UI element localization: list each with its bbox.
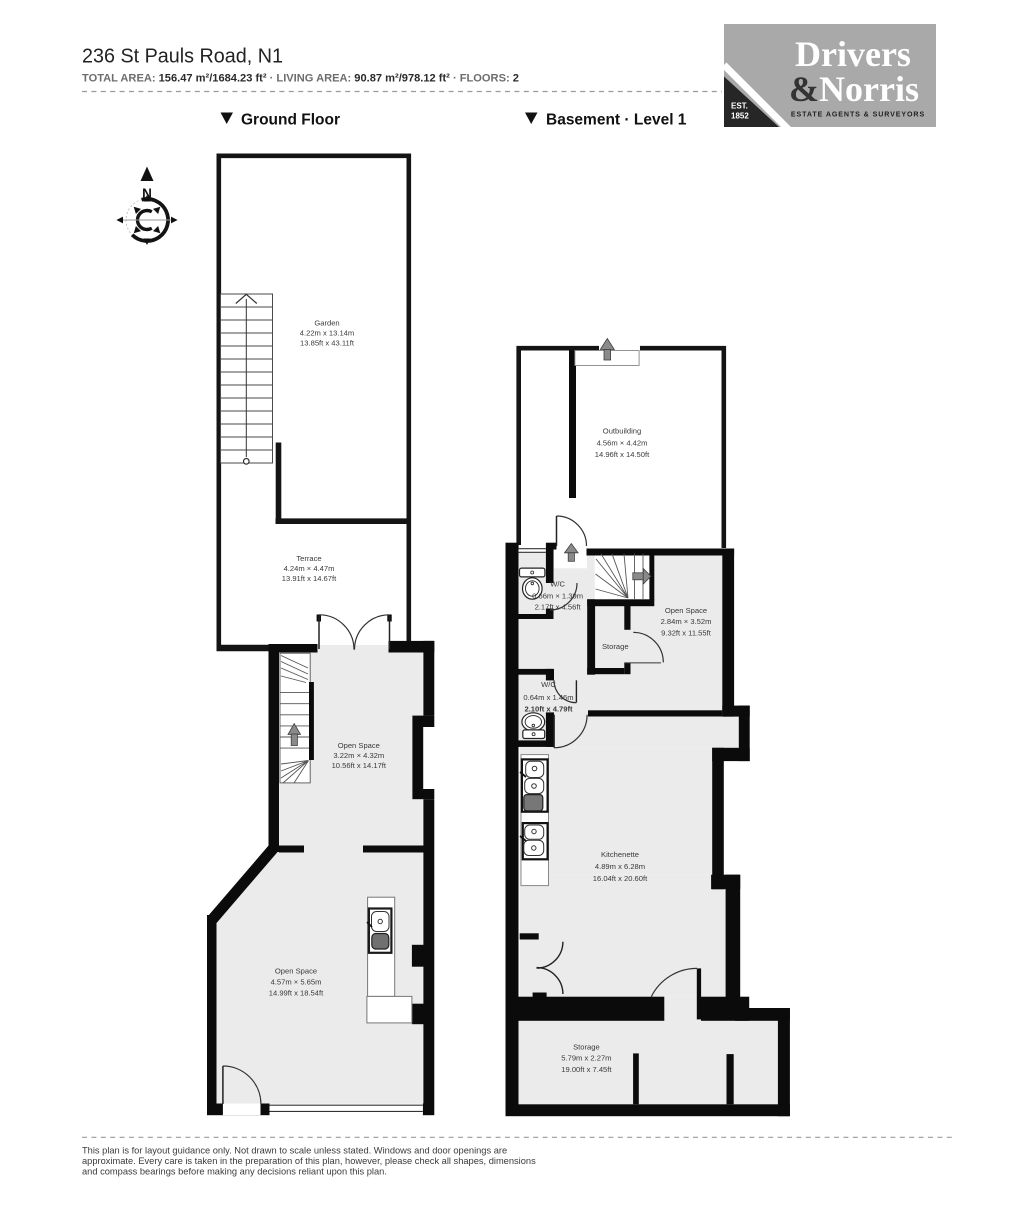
svg-text:9.32ft x 11.55ft: 9.32ft x 11.55ft [661,629,712,638]
svg-text:W/C: W/C [550,580,565,589]
svg-text:1852: 1852 [731,112,749,121]
svg-text:14.96ft x 14.50ft: 14.96ft x 14.50ft [595,450,650,459]
svg-text:Open Space: Open Space [338,741,380,750]
svg-text:Garden: Garden [314,319,339,328]
svg-text:Drivers: Drivers [795,34,911,74]
svg-text:ESTATE AGENTS & SURVEYORS: ESTATE AGENTS & SURVEYORS [791,111,925,119]
svg-text:&Norris: &Norris [789,69,919,109]
svg-text:2.17ft x 4.56ft: 2.17ft x 4.56ft [535,603,582,612]
svg-text:This plan is for layout guidan: This plan is for layout guidance only. N… [82,1146,507,1156]
svg-text:Outbuilding: Outbuilding [603,427,641,436]
svg-text:TOTAL AREA: 156.47 m²/1684.23: TOTAL AREA: 156.47 m²/1684.23 ft² · LIVI… [82,73,519,85]
svg-text:Basement · Level 1: Basement · Level 1 [546,112,687,129]
svg-text:0.66m × 1.39m: 0.66m × 1.39m [532,592,583,601]
svg-text:2.10ft x 4.79ft: 2.10ft x 4.79ft [524,705,573,714]
svg-text:13.91ft x 14.67ft: 13.91ft x 14.67ft [282,574,337,583]
svg-text:Storage: Storage [602,642,629,651]
svg-text:Open Space: Open Space [665,606,707,615]
svg-text:4.24m × 4.47m: 4.24m × 4.47m [284,564,335,573]
svg-text:Kitchenette: Kitchenette [601,850,639,859]
svg-text:10.56ft x 14.17ft: 10.56ft x 14.17ft [332,761,387,770]
svg-text:4.22m x 13.14m: 4.22m x 13.14m [300,329,354,338]
svg-text:4.89m x 6.28m: 4.89m x 6.28m [595,862,645,871]
svg-text:19.00ft x 7.45ft: 19.00ft x 7.45ft [561,1065,612,1074]
svg-text:3.22m × 4.32m: 3.22m × 4.32m [333,751,384,760]
svg-text:13.85ft x 43.11ft: 13.85ft x 43.11ft [300,339,355,348]
svg-text:Ground Floor: Ground Floor [241,112,340,129]
svg-text:EST.: EST. [731,102,748,111]
svg-text:16.04ft x 20.60ft: 16.04ft x 20.60ft [593,874,648,883]
svg-text:14.99ft x 18.54ft: 14.99ft x 18.54ft [269,988,324,997]
svg-text:5.79m x 2.27m: 5.79m x 2.27m [561,1054,611,1063]
svg-text:Terrace: Terrace [296,554,321,563]
svg-text:4.57m × 5.65m: 4.57m × 5.65m [271,977,322,986]
svg-text:Open Space: Open Space [275,966,317,975]
svg-text:4.56m × 4.42m: 4.56m × 4.42m [597,439,648,448]
svg-text:2.84m × 3.52m: 2.84m × 3.52m [661,617,712,626]
svg-text:Storage: Storage [573,1042,600,1051]
svg-text:and compass bearings before ma: and compass bearings before making any d… [82,1167,387,1177]
svg-text:approximate. Every care is tak: approximate. Every care is taken in the … [82,1156,536,1166]
svg-text:236 St Pauls Road, N1: 236 St Pauls Road, N1 [82,45,283,68]
